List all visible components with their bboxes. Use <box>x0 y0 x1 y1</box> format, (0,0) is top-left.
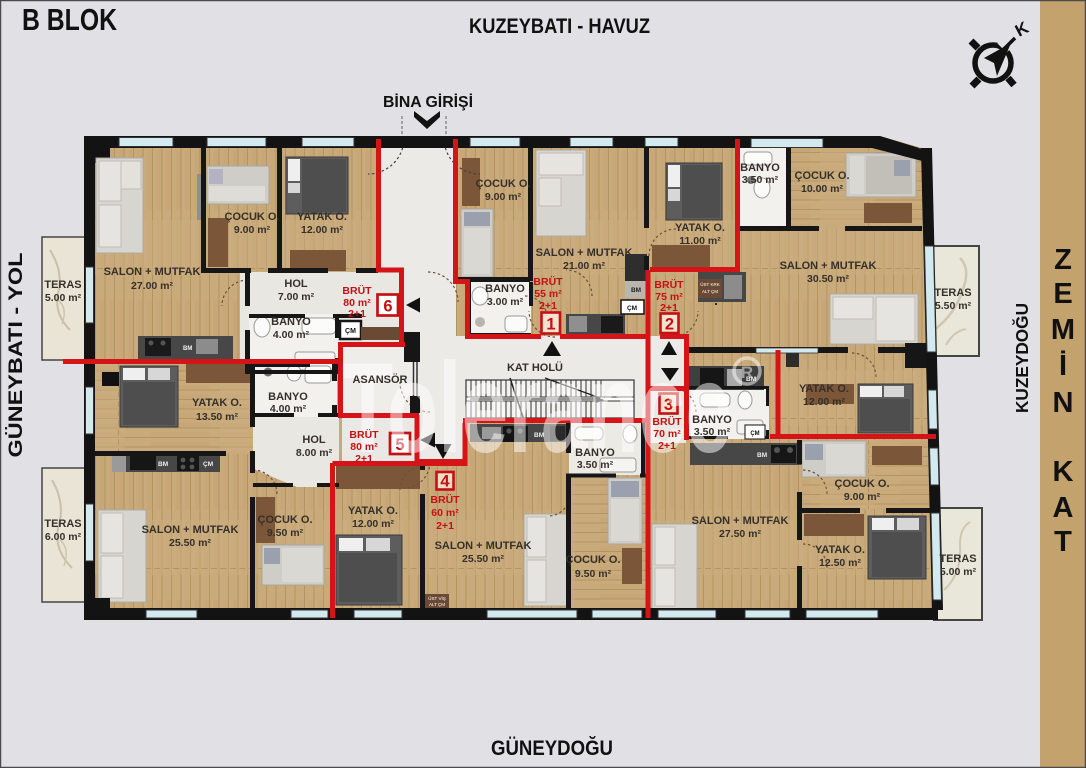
svg-text:5.00 m²: 5.00 m² <box>940 566 977 578</box>
svg-text:BANYO: BANYO <box>271 316 311 328</box>
svg-text:Tolerance: Tolerance <box>342 337 732 480</box>
svg-text:ÇOCUK O.: ÇOCUK O. <box>258 514 313 526</box>
svg-text:TERAS: TERAS <box>939 553 976 565</box>
svg-text:5.00 m²: 5.00 m² <box>45 292 82 304</box>
svg-text:Z: Z <box>1054 244 1072 276</box>
svg-text:25.50 m²: 25.50 m² <box>462 553 505 565</box>
svg-text:SALON + MUTFAK: SALON + MUTFAK <box>692 515 789 527</box>
svg-text:13.50 m²: 13.50 m² <box>196 411 239 423</box>
svg-text:6.00 m²: 6.00 m² <box>45 531 82 543</box>
svg-text:BM: BM <box>183 346 192 352</box>
svg-text:E: E <box>1053 278 1072 310</box>
svg-text:10.00 m²: 10.00 m² <box>801 183 844 195</box>
svg-text:BRÜT: BRÜT <box>342 284 372 297</box>
svg-text:2+1: 2+1 <box>658 440 676 452</box>
svg-text:ÇM: ÇM <box>345 328 356 335</box>
svg-text:9.00 m²: 9.00 m² <box>485 191 522 203</box>
svg-text:YATAK O.: YATAK O. <box>297 211 347 223</box>
svg-text:HOL: HOL <box>302 434 326 446</box>
svg-text:SALON + MUTFAK: SALON + MUTFAK <box>780 260 877 272</box>
svg-text:B BLOK: B BLOK <box>22 3 117 37</box>
svg-text:R: R <box>741 363 753 382</box>
svg-text:SALON + MUTFAK: SALON + MUTFAK <box>435 540 532 552</box>
svg-text:TERAS: TERAS <box>44 518 81 530</box>
svg-text:GÜNEYDOĞU: GÜNEYDOĞU <box>491 736 613 760</box>
svg-text:70 m²: 70 m² <box>653 428 681 440</box>
svg-text:ÜST KRK: ÜST KRK <box>700 281 719 287</box>
svg-text:3.50 m²: 3.50 m² <box>577 459 614 471</box>
svg-text:BANYO: BANYO <box>268 391 308 403</box>
svg-text:HOL: HOL <box>284 278 308 290</box>
svg-text:4.00 m²: 4.00 m² <box>273 329 310 341</box>
svg-text:9.50 m²: 9.50 m² <box>575 568 612 580</box>
svg-text:KUZEYDOĞU: KUZEYDOĞU <box>1011 303 1032 413</box>
svg-text:5.50 m²: 5.50 m² <box>935 300 972 312</box>
svg-text:8.00 m²: 8.00 m² <box>296 447 333 459</box>
svg-text:25.50 m²: 25.50 m² <box>169 537 212 549</box>
svg-text:6: 6 <box>383 298 392 316</box>
svg-text:BM: BM <box>158 461 168 468</box>
svg-text:2+1: 2+1 <box>539 300 557 312</box>
svg-text:80 m²: 80 m² <box>350 441 378 453</box>
svg-text:BM: BM <box>757 452 767 459</box>
svg-text:YATAK O.: YATAK O. <box>348 505 398 517</box>
svg-text:3.50 m²: 3.50 m² <box>742 174 779 186</box>
svg-text:YATAK O.: YATAK O. <box>799 383 849 395</box>
svg-text:ALT ÇM: ALT ÇM <box>702 289 718 294</box>
svg-text:BANYO: BANYO <box>740 162 780 174</box>
svg-text:KAT HOLÜ: KAT HOLÜ <box>507 361 563 374</box>
svg-text:YATAK O.: YATAK O. <box>192 397 242 409</box>
svg-text:3.00 m²: 3.00 m² <box>487 296 524 308</box>
svg-text:1: 1 <box>546 316 555 334</box>
svg-text:BM: BM <box>631 287 641 294</box>
svg-text:BRÜT: BRÜT <box>430 493 460 506</box>
svg-text:ÇOCUK O.: ÇOCUK O. <box>795 170 850 182</box>
svg-text:ÇOCUK O.: ÇOCUK O. <box>225 211 280 223</box>
svg-text:ASANSÖR: ASANSÖR <box>352 373 407 386</box>
svg-text:ÇM: ÇM <box>203 461 213 468</box>
svg-text:GÜNEYBATI - YOL: GÜNEYBATI - YOL <box>4 252 27 457</box>
svg-text:55 m²: 55 m² <box>534 288 562 300</box>
svg-text:2+1: 2+1 <box>436 520 454 532</box>
svg-text:12.00 m²: 12.00 m² <box>803 396 846 408</box>
svg-text:12.00 m²: 12.00 m² <box>352 518 395 530</box>
svg-text:12.50 m²: 12.50 m² <box>819 557 862 569</box>
svg-text:11.00 m²: 11.00 m² <box>679 235 721 247</box>
svg-text:12.00 m²: 12.00 m² <box>301 224 344 236</box>
svg-text:ALT ÇM: ALT ÇM <box>429 602 445 607</box>
svg-text:BRÜT: BRÜT <box>349 428 379 441</box>
svg-text:27.50 m²: 27.50 m² <box>719 528 762 540</box>
svg-text:2: 2 <box>665 316 674 334</box>
svg-text:TERAS: TERAS <box>44 279 81 291</box>
svg-text:SALON + MUTFAK: SALON + MUTFAK <box>536 247 633 259</box>
svg-text:SALON + MUTFAK: SALON + MUTFAK <box>142 524 239 536</box>
svg-text:BİNA GİRİŞİ: BİNA GİRİŞİ <box>383 94 473 111</box>
svg-text:TERAS: TERAS <box>934 287 971 299</box>
svg-text:BANYO: BANYO <box>485 283 525 295</box>
svg-text:60 m²: 60 m² <box>431 507 459 519</box>
svg-text:K: K <box>1053 456 1074 488</box>
svg-text:9.00 m²: 9.00 m² <box>234 224 271 236</box>
svg-text:9.50 m²: 9.50 m² <box>267 527 304 539</box>
svg-text:ÇM: ÇM <box>627 305 637 312</box>
svg-text:YATAK O.: YATAK O. <box>815 544 865 556</box>
svg-text:SALON + MUTFAK: SALON + MUTFAK <box>104 266 201 278</box>
svg-text:2+1: 2+1 <box>348 308 366 320</box>
svg-text:BANYO: BANYO <box>692 414 732 426</box>
svg-text:KUZEYBATI - HAVUZ: KUZEYBATI - HAVUZ <box>469 14 650 38</box>
svg-text:YATAK O.: YATAK O. <box>675 222 725 234</box>
svg-text:30.50 m²: 30.50 m² <box>807 273 850 285</box>
svg-text:İ: İ <box>1059 350 1067 382</box>
svg-text:27.00 m²: 27.00 m² <box>131 280 174 292</box>
svg-text:BANYO: BANYO <box>575 447 615 459</box>
svg-text:BRÜT: BRÜT <box>652 415 682 428</box>
svg-text:ÇM: ÇM <box>750 431 759 437</box>
svg-text:ÜST VİŞ: ÜST VİŞ <box>428 595 445 601</box>
svg-text:ÇOCUK O.: ÇOCUK O. <box>835 478 890 490</box>
svg-text:2+1: 2+1 <box>660 302 678 314</box>
svg-text:9.00 m²: 9.00 m² <box>844 491 881 503</box>
svg-text:A: A <box>1053 492 1074 524</box>
svg-text:BRÜT: BRÜT <box>654 278 684 291</box>
svg-text:T: T <box>1054 526 1072 558</box>
svg-text:4.00 m²: 4.00 m² <box>270 403 307 415</box>
svg-text:M: M <box>1051 314 1075 346</box>
svg-text:21.00 m²: 21.00 m² <box>563 260 606 272</box>
svg-text:N: N <box>1053 387 1074 419</box>
svg-text:ÇOCUK O.: ÇOCUK O. <box>566 554 621 566</box>
svg-text:7.00 m²: 7.00 m² <box>278 291 315 303</box>
svg-text:2+1: 2+1 <box>355 453 373 465</box>
svg-text:ÇOCUK O.: ÇOCUK O. <box>476 178 531 190</box>
svg-text:BRÜT: BRÜT <box>533 275 563 288</box>
svg-text:3.50 m²: 3.50 m² <box>694 426 731 438</box>
